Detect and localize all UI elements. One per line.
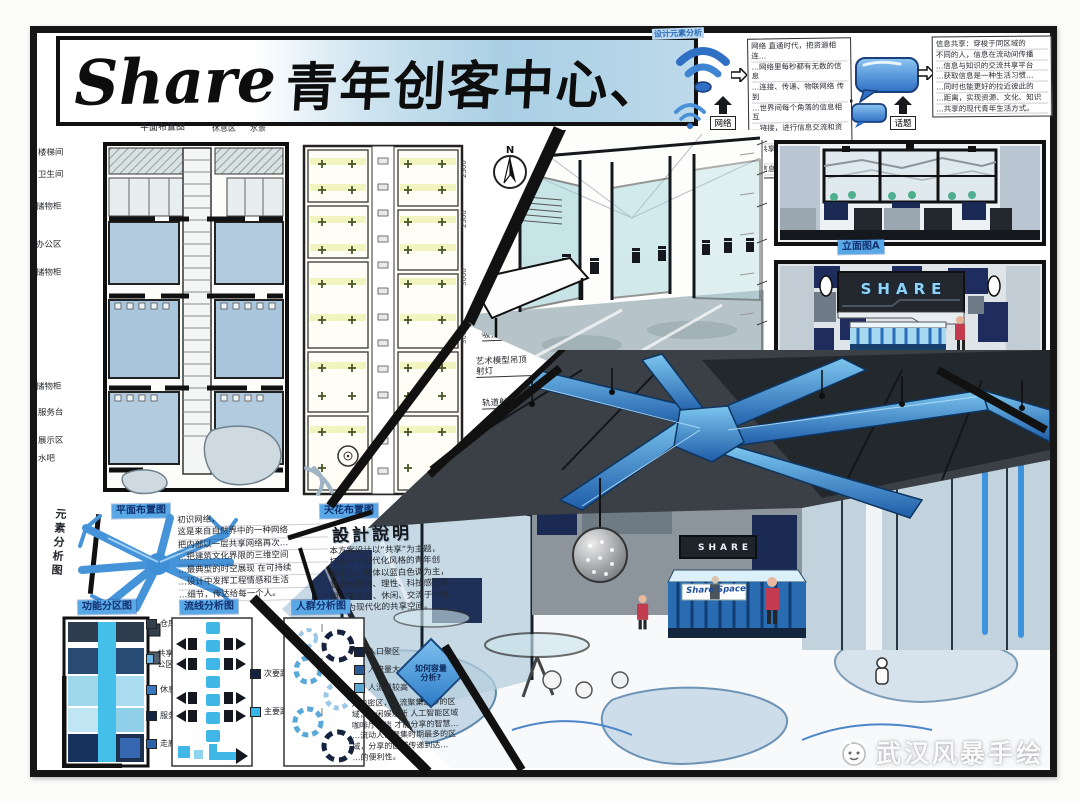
network-caption-box: 网络: [710, 96, 736, 130]
note-line: …网络里每秒都有无数的信息: [751, 61, 847, 83]
elevation-sign-text: SHARE: [845, 280, 963, 298]
watermark-text: 武汉风暴手绘: [876, 734, 1044, 770]
dim-label: 2500: [460, 160, 468, 178]
counter-sign-text: Share Space: [686, 584, 746, 596]
note-line: …连接、传递、物联网络 传到: [752, 81, 848, 103]
design-description-title: 設計說明: [332, 519, 413, 547]
zoning-title-chip: 功能分区图: [78, 599, 136, 614]
legend-item: 人流量较高: [354, 682, 408, 693]
legend-swatch: [250, 707, 261, 717]
elevation-a-label-chip: 立面图A: [838, 240, 884, 255]
diamond-text: 如何容量: [415, 664, 447, 673]
design-description-body: 本方案设计以“共享”为主题， 打造一个现代化风格的青年创 客中心。整体以蓝白色调…: [329, 543, 480, 615]
room-label: 储物柜: [36, 382, 62, 394]
dim-label: 2500: [460, 210, 468, 228]
room-label: 储物柜: [36, 268, 62, 280]
wifi-icon: [674, 44, 732, 96]
topic-note: 信息共享：穿梭于同区域的 不同的人，信息在流动间传播 …信息与知识的交流共享平台…: [932, 35, 1053, 117]
legend-swatch: [354, 683, 365, 693]
title-banner: Share 青年创客中心、: [56, 36, 698, 126]
elevation-b-drawing: [772, 258, 1048, 364]
circulation-title-chip: 流线分析图: [180, 599, 238, 614]
north-arrow: N: [488, 143, 532, 191]
room-label: 卫生间: [38, 170, 64, 182]
legend-item: 入口聚区: [354, 646, 400, 657]
elevation-a-drawing: [772, 138, 1048, 250]
room-label: 储物柜: [36, 202, 62, 214]
room-label: 水吧: [38, 454, 55, 466]
legend-swatch: [146, 619, 157, 629]
crowd-paragraph: 入口密区，人流聚集最多的区 域，休闲娱乐所 人工智能区域 咖啡厅洽谈 才能分享的…: [351, 697, 472, 764]
legend-swatch: [146, 654, 154, 664]
corner-label: 设计元素分析: [652, 27, 704, 40]
legend-swatch: [146, 739, 157, 749]
up-arrow-icon: [890, 96, 916, 116]
north-letter: N: [506, 145, 514, 156]
diamond-text: 分析?: [415, 673, 447, 682]
legend-swatch: [250, 669, 261, 679]
light-annotation: 艺术模型吊顶 射灯: [476, 355, 535, 378]
ceiling-plan-title-chip: 天花布置图: [320, 503, 378, 518]
room-label: 楼梯间: [38, 148, 64, 160]
perspective-sign-text: SHARE: [694, 543, 756, 553]
circulation-diagram: [170, 616, 254, 768]
legend-item: 人流量大: [354, 664, 400, 675]
title-chinese: 青年创客中心、: [284, 42, 667, 120]
ceiling-plan-drawing: [296, 138, 471, 503]
legend-swatch: [354, 647, 365, 657]
dim-label: 3000: [460, 268, 468, 286]
crowd-title-chip: 人群分析图: [292, 599, 350, 614]
room-label: 展示区: [38, 436, 64, 448]
concept-paragraph: 初识网络， 这是来自自然界中的一种网络 把内部以一层共享网络再次… …把建筑文化…: [177, 512, 329, 602]
floor-plan-drawing: [95, 130, 295, 502]
topic-caption: 话题: [890, 116, 916, 130]
note-line: …共享的现代青年生活方式。: [936, 103, 1048, 115]
room-label: 办公区: [36, 240, 62, 252]
arrow-icon: [731, 68, 747, 82]
watermark: 武汉风暴手绘: [838, 734, 1044, 770]
network-caption: 网络: [710, 116, 736, 130]
wifi-small-icon: [672, 100, 708, 130]
room-label: 服务台: [38, 408, 64, 420]
note-line: …世界间每个角落的信息相互: [752, 102, 848, 124]
elevation-dimensions: [736, 135, 770, 380]
title-english: Share: [73, 43, 276, 120]
design-board: Share 青年创客中心、 设计元素分析 网络 网络 直通时代，把资源相连… ……: [0, 0, 1080, 801]
up-arrow-icon: [710, 96, 736, 116]
legend-swatch: [354, 665, 365, 675]
note-line: 网络 直通时代，把资源相连…: [751, 40, 847, 62]
topic-caption-box: 话题: [890, 96, 916, 130]
dim-label: 3000: [460, 326, 468, 344]
legend-swatch: [146, 685, 157, 695]
watermark-mascot-icon: [838, 736, 870, 768]
legend-swatch: [146, 711, 157, 721]
